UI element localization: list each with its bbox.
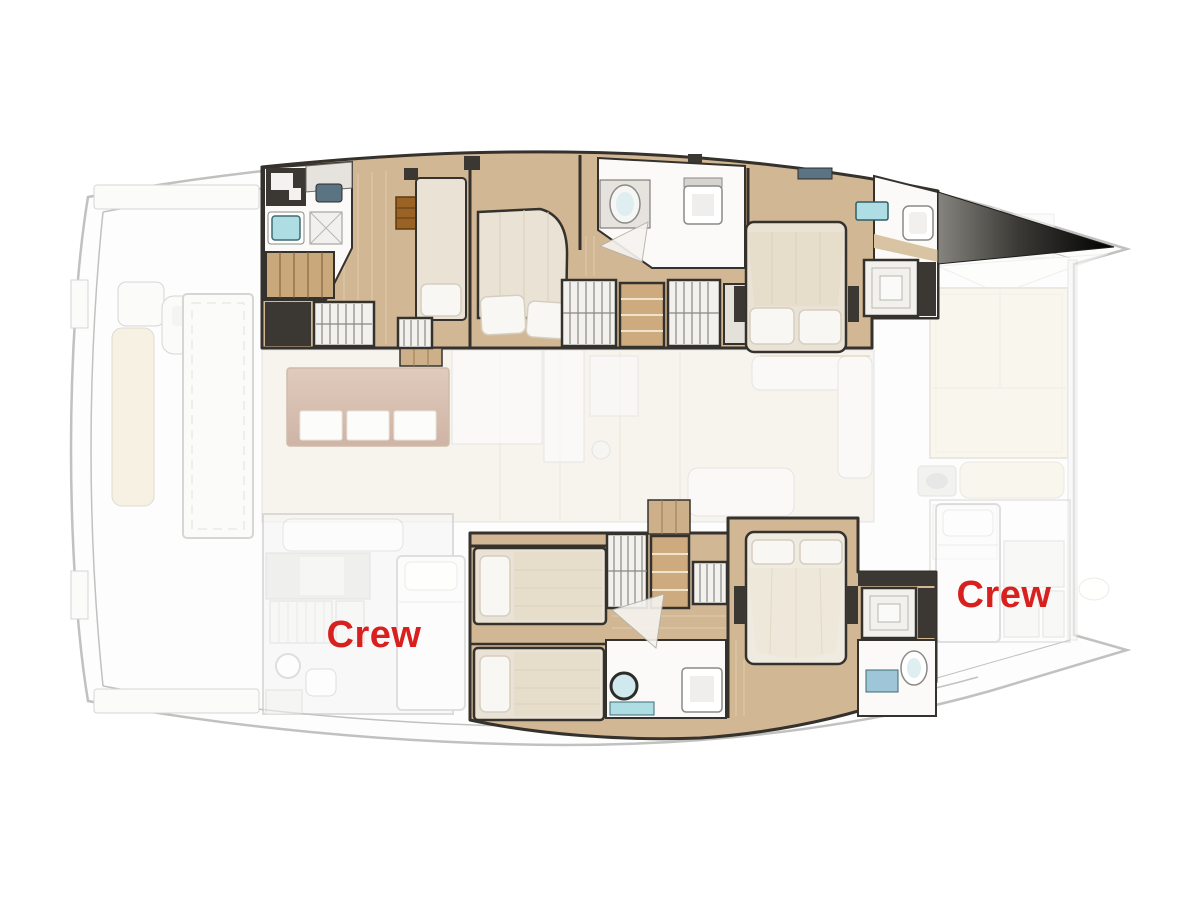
swim-ladder-top	[71, 280, 88, 328]
starboard-berth-2-blanket	[514, 652, 600, 716]
starboard-bath-window	[610, 702, 654, 715]
salon-sofa-right	[838, 356, 872, 478]
transom-step-top	[94, 185, 259, 209]
floor-plan-svg: Crew Crew	[0, 0, 1200, 898]
port-aft-window	[798, 168, 832, 179]
galley-counter	[452, 350, 542, 444]
starboard-step-l	[734, 586, 746, 624]
yacht-floor-plan-page: Crew Crew	[0, 0, 1200, 898]
port-mid-bathroom	[598, 158, 745, 268]
galley-sink-2	[347, 411, 389, 440]
aft-bench-cushion	[112, 328, 154, 506]
port-aft-pillow-1	[750, 308, 794, 344]
swim-ladder-bottom	[71, 571, 88, 619]
crew-settee	[283, 519, 403, 551]
helm-seat	[118, 282, 164, 326]
port-technical-locker	[265, 302, 311, 346]
crew-label-forward: Crew	[957, 574, 1052, 616]
starboard-bed-pillow-2	[800, 540, 842, 564]
fwd-bench	[960, 462, 1064, 498]
crew-berth-aft-pillow	[405, 562, 457, 590]
galley-island	[287, 368, 449, 446]
port-night-locker	[398, 318, 432, 348]
port-aft-bath-window	[856, 202, 888, 220]
galley-sink-1	[300, 411, 342, 440]
starboard-aft-bathroom	[858, 572, 936, 716]
fwd-sunpad	[930, 288, 1068, 458]
starboard-aft-bath-wall	[858, 572, 936, 586]
crew-label-aft: Crew	[327, 614, 422, 656]
starboard-aft-cabin	[734, 532, 858, 664]
port-fwd-sink-icon	[272, 216, 300, 240]
cockpit-table	[183, 294, 253, 538]
port-aft-pillow-2	[799, 310, 841, 344]
starboard-berth-2-pillow	[480, 656, 510, 712]
port-stairs	[266, 252, 334, 298]
port-locker-row	[562, 280, 748, 347]
crew-cabinet-door	[300, 557, 344, 595]
bow-hatch	[1079, 578, 1109, 600]
crew-toilet-icon	[306, 669, 336, 696]
crew-shower-icon	[266, 690, 302, 714]
table-pedestal	[592, 441, 610, 459]
starboard-aft-window	[866, 670, 898, 692]
starboard-berth-1-pillow	[480, 556, 510, 616]
starboard-bed-pillow-1	[752, 540, 794, 564]
starboard-step-r	[846, 586, 858, 624]
salon	[262, 350, 874, 522]
port-aft-step-l	[734, 286, 745, 322]
port-fwd-window	[316, 184, 342, 202]
port-aft-step-r	[848, 286, 859, 322]
starboard-berth-1-blanket	[514, 552, 602, 620]
fwd-console-knob	[926, 473, 948, 489]
port-aft-bath-column	[919, 262, 936, 316]
starboard-aft-bath-column	[918, 588, 936, 638]
port-single-berth-pillow	[421, 284, 461, 316]
crew-berth-fwd-pillow	[943, 510, 993, 536]
starboard-locker-b	[693, 562, 727, 604]
nav-cabinet	[590, 356, 638, 416]
galley-sink-3	[394, 411, 436, 440]
port-bed-pillow-1	[480, 295, 526, 335]
starboard-companionway	[648, 500, 690, 534]
fridge-unit	[544, 350, 584, 462]
crew-sink-icon	[276, 654, 300, 678]
transom-step-bottom	[94, 689, 259, 713]
salon-sofa-aft	[688, 468, 794, 516]
starboard-sink-icon	[611, 673, 637, 699]
port-companionway	[400, 348, 442, 366]
